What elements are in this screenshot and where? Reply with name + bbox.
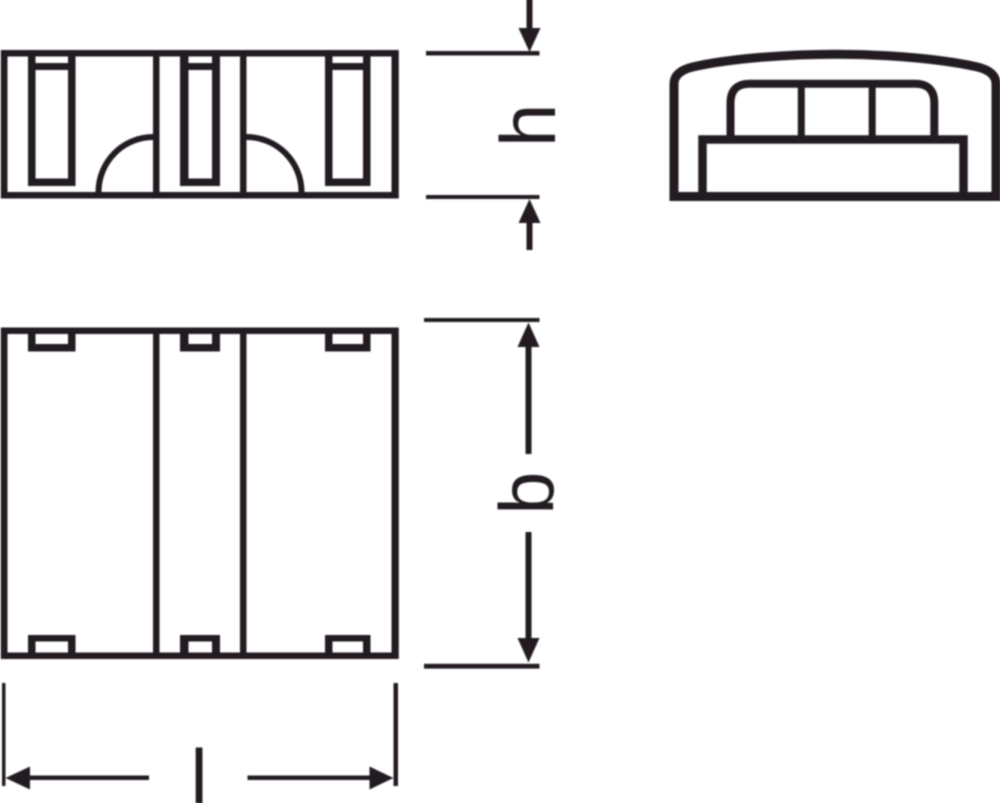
svg-text:b: b <box>485 472 571 515</box>
svg-text:h: h <box>484 104 572 147</box>
svg-text:l: l <box>191 735 208 803</box>
